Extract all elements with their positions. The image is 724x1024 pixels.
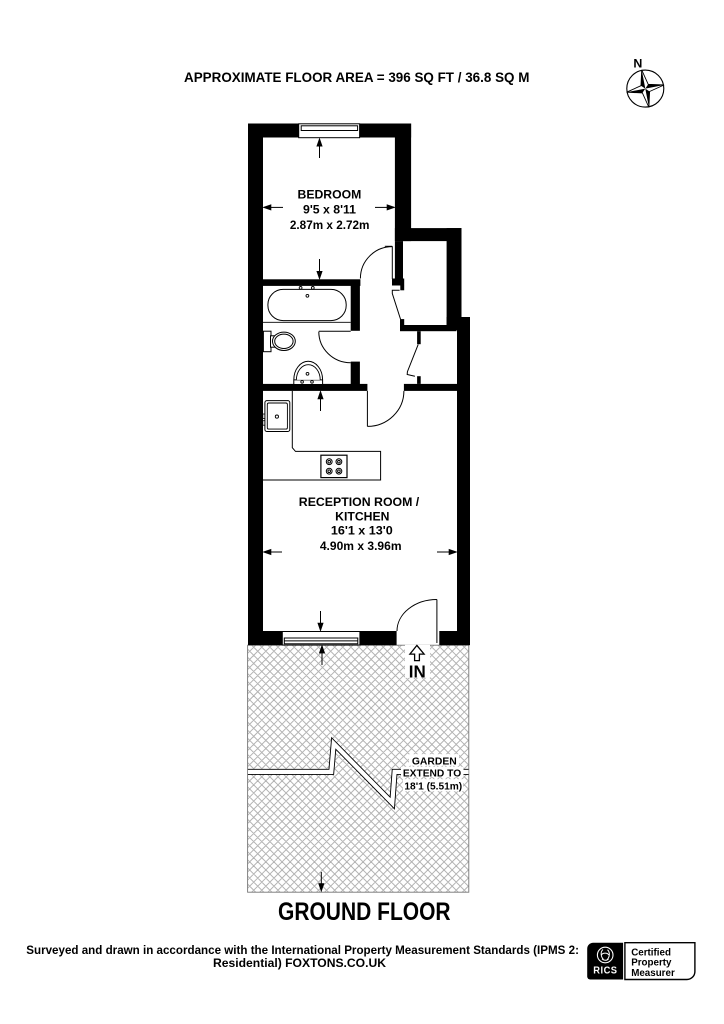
svg-text:Surveyed and drawn in accordan: Surveyed and drawn in accordance with th…	[26, 944, 579, 957]
svg-text:GROUND FLOOR: GROUND FLOOR	[278, 898, 451, 926]
svg-text:N: N	[633, 57, 642, 71]
svg-text:2.87m x 2.72m: 2.87m x 2.72m	[290, 218, 370, 232]
svg-text:Measurer: Measurer	[631, 968, 675, 979]
svg-text:RECEPTION ROOM /: RECEPTION ROOM /	[299, 495, 420, 509]
svg-text:EXTEND TO: EXTEND TO	[403, 768, 462, 779]
svg-text:9'5 x 8'11: 9'5 x 8'11	[303, 202, 356, 216]
svg-text:BEDROOM: BEDROOM	[298, 187, 362, 201]
svg-text:Residential) FOXTONS.CO.UK: Residential) FOXTONS.CO.UK	[213, 957, 387, 970]
svg-text:4.90m x 3.96m: 4.90m x 3.96m	[320, 539, 402, 553]
svg-text:GARDEN: GARDEN	[412, 756, 457, 767]
svg-text:RICS: RICS	[593, 965, 617, 976]
svg-text:IN: IN	[409, 661, 426, 681]
svg-text:16'1 x 13'0: 16'1 x 13'0	[331, 524, 393, 538]
svg-text:18'1 (5.51m): 18'1 (5.51m)	[404, 782, 462, 793]
svg-text:APPROXIMATE FLOOR AREA = 396 S: APPROXIMATE FLOOR AREA = 396 SQ FT / 36.…	[184, 70, 529, 85]
svg-text:KITCHEN: KITCHEN	[335, 509, 389, 523]
